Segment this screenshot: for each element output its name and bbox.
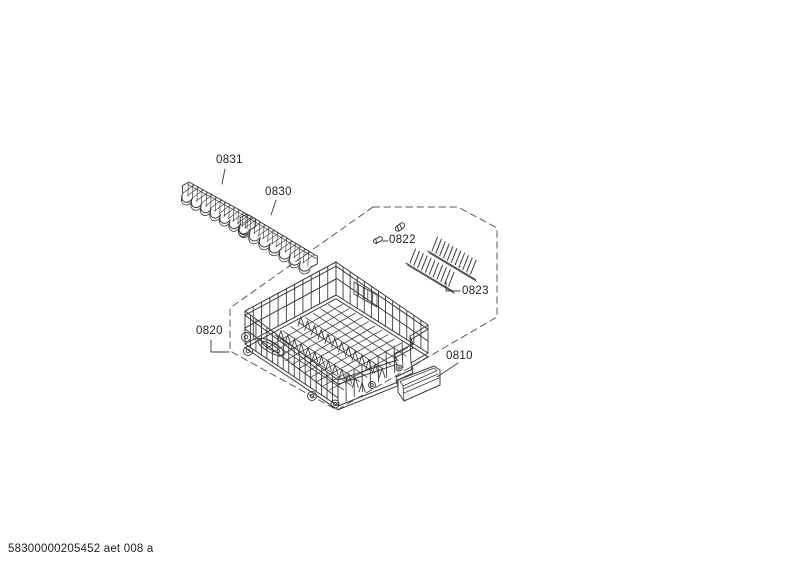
exploded-view-drawing (0, 0, 800, 566)
document-code: 58300000205452 aet 008 a (8, 543, 154, 555)
part-label-0823: 0823 (462, 286, 489, 297)
part-label-0822: 0822 (389, 235, 416, 246)
diagram-canvas: 0831 0830 0822 0823 0820 0810 5830000020… (0, 0, 800, 566)
part-label-0830: 0830 (265, 187, 292, 198)
part-0820-lower-basket (242, 262, 429, 410)
part-label-0820: 0820 (196, 326, 223, 337)
part-label-0831: 0831 (216, 155, 243, 166)
part-label-0810: 0810 (446, 351, 473, 362)
part-0830-cup-shelf (232, 212, 321, 278)
part-0831-cup-shelf (175, 180, 259, 240)
